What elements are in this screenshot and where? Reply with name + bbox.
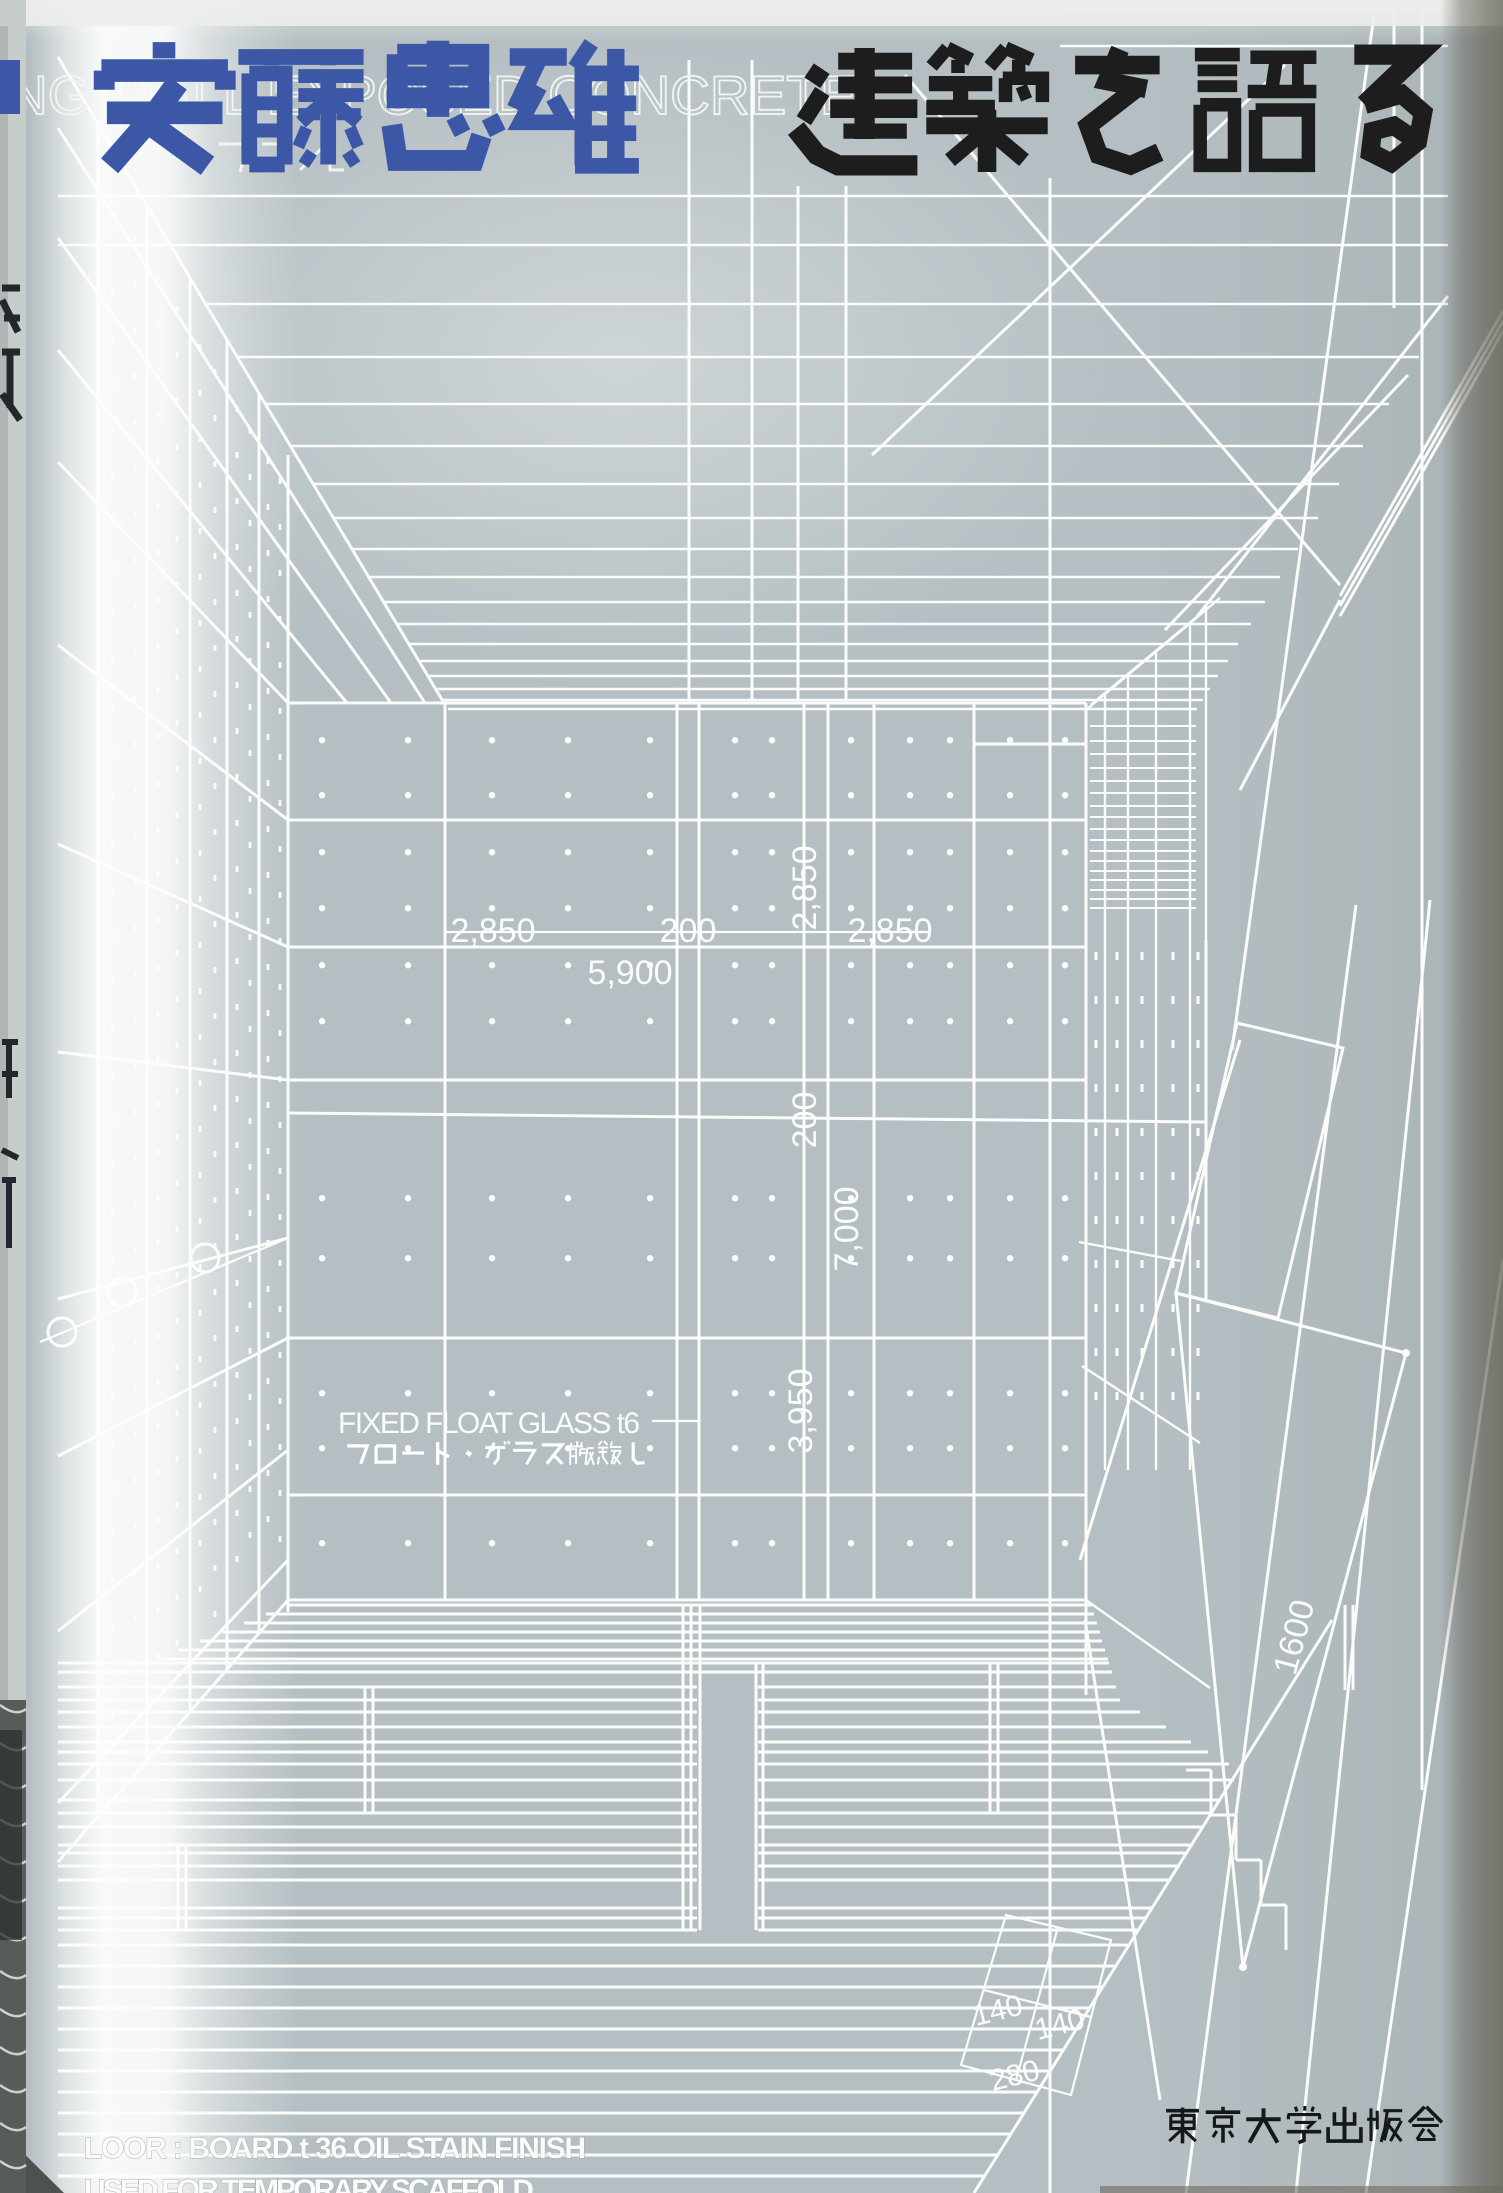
svg-text:LOOR : BOARD t 36 OIL STAIN FI: LOOR : BOARD t 36 OIL STAIN FINISH [84,2132,586,2165]
svg-text:USED FOR TEMPORARY SCAFFOLD: USED FOR TEMPORARY SCAFFOLD [84,2174,534,2193]
svg-text:2,850: 2,850 [786,845,824,930]
svg-text:2,850: 2,850 [450,912,535,950]
svg-text:200: 200 [786,1092,824,1149]
svg-text:3,950: 3,950 [782,1368,820,1453]
svg-text:2,850: 2,850 [847,912,932,950]
svg-text:200: 200 [660,912,717,950]
svg-text:7,000: 7,000 [828,1186,866,1271]
svg-text:FIXED FLOAT GLASS t6: FIXED FLOAT GLASS t6 [338,1407,640,1440]
svg-text:5,900: 5,900 [587,954,672,992]
